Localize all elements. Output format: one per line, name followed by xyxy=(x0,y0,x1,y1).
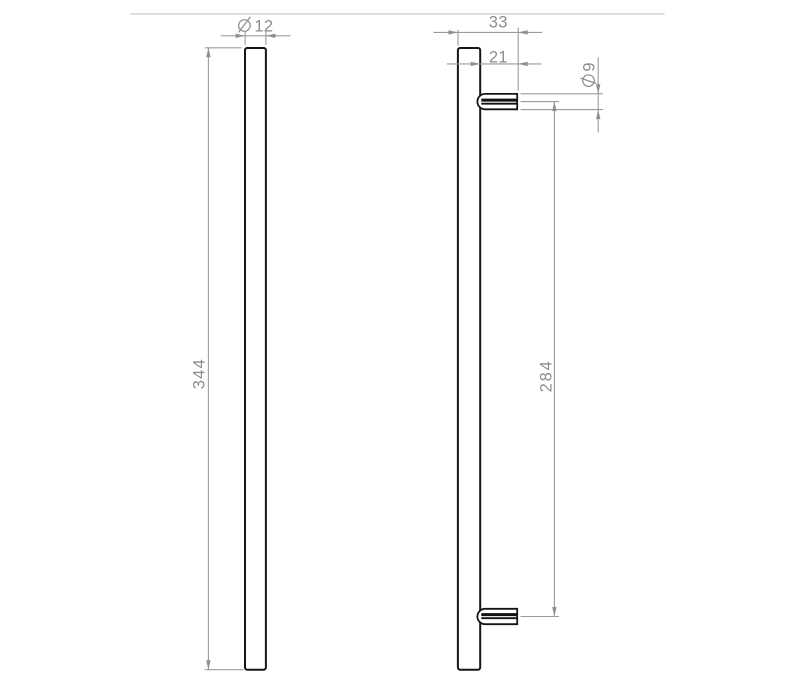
svg-text:21: 21 xyxy=(489,49,508,67)
svg-text:284: 284 xyxy=(537,359,555,392)
svg-text:344: 344 xyxy=(191,358,209,389)
svg-text:9: 9 xyxy=(580,62,598,71)
svg-text:12: 12 xyxy=(254,17,273,35)
svg-text:33: 33 xyxy=(489,14,508,32)
